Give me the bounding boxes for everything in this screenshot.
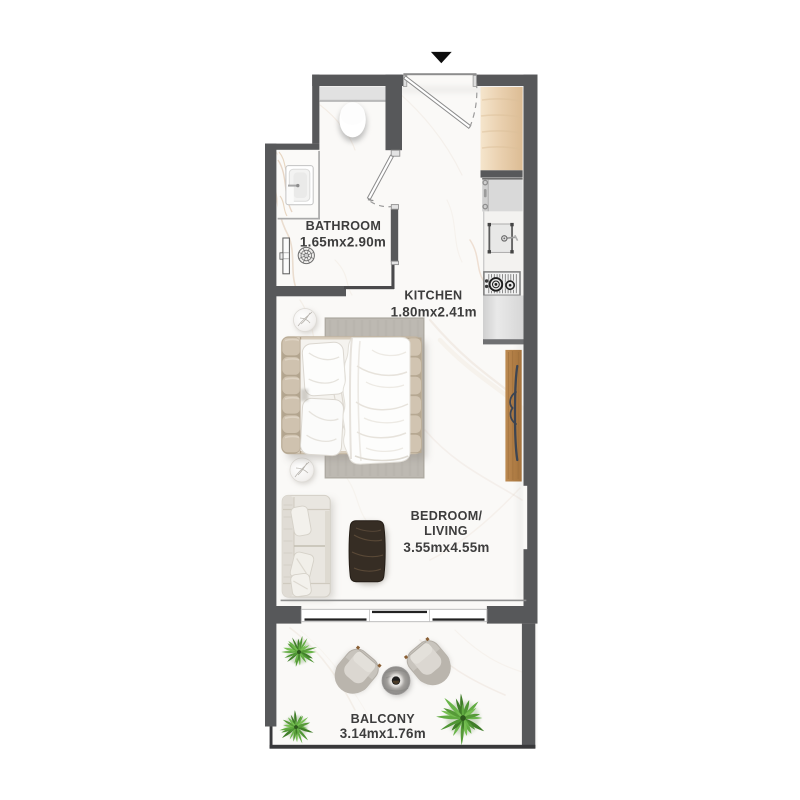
svg-text:1.80mx2.41m: 1.80mx2.41m	[391, 305, 477, 320]
svg-text:BEDROOM/: BEDROOM/	[411, 509, 483, 523]
svg-text:BALCONY: BALCONY	[351, 712, 416, 726]
svg-text:BATHROOM: BATHROOM	[306, 219, 382, 233]
svg-text:3.55mx4.55m: 3.55mx4.55m	[403, 540, 489, 555]
svg-text:1.65mx2.90m: 1.65mx2.90m	[300, 235, 386, 250]
svg-text:LIVING: LIVING	[424, 524, 468, 538]
svg-text:KITCHEN: KITCHEN	[404, 289, 462, 303]
svg-text:3.14mx1.76m: 3.14mx1.76m	[340, 726, 426, 741]
